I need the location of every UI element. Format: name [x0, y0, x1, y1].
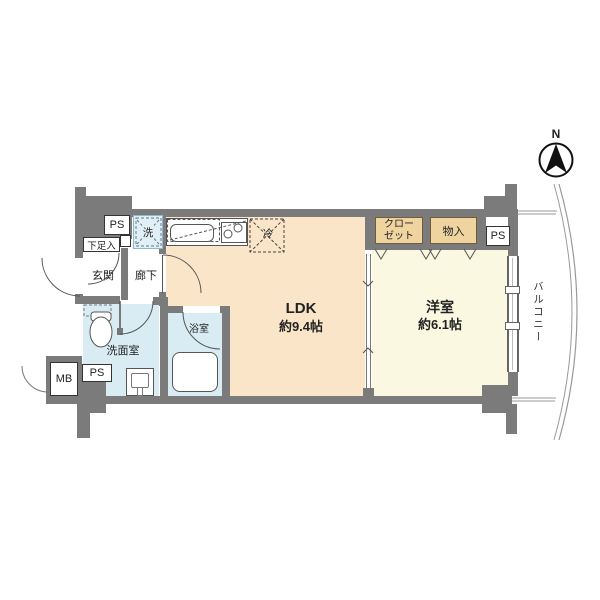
kitchen-stove: [221, 222, 247, 243]
balcony-outer-curve: [559, 184, 577, 440]
pipe-space-top-right-label: PS: [491, 230, 506, 242]
wall-left-upper: [75, 239, 83, 258]
western-room-size: 約6.1帖: [390, 317, 490, 333]
bathroom-label: 浴室: [183, 324, 215, 337]
storage-cabinet-label: 物入: [443, 223, 465, 239]
western-room-name: 洋室: [390, 299, 490, 317]
washing-machine-label: 洗: [142, 225, 155, 240]
window-mullion-upper: [505, 286, 520, 294]
north-arrow-icon: [545, 144, 567, 173]
refrigerator-label-wrap: 冷: [252, 228, 284, 241]
pipe-space-top-left-label: PS: [110, 219, 125, 231]
hallway-label: 廊下: [128, 270, 164, 284]
western-room-label: 洋室 約6.1帖: [390, 299, 490, 333]
sliding-door-line-right: [370, 254, 371, 392]
wall-bottom-left-stub: [77, 404, 90, 438]
wall-washroom-bathroom-divider: [160, 305, 168, 396]
wall-slider-stub-bottom: [363, 388, 374, 396]
wall-bathroom-right: [222, 306, 230, 396]
refrigerator-label: 冷: [262, 228, 275, 240]
closet-label: クローゼット: [382, 219, 416, 242]
wall-bottom-right-stub: [506, 404, 517, 434]
balcony-inner-curve: [554, 184, 572, 440]
north-arrow-circle: [540, 144, 573, 177]
ldk-name: LDK: [246, 300, 356, 319]
washing-machine-pad: 洗: [133, 215, 163, 249]
wall-hallway-bottom-right: [153, 297, 168, 305]
storage-cabinet: 物入: [430, 217, 477, 244]
wall-step-top-right-block: [484, 196, 508, 217]
closet: クローゼット: [375, 217, 423, 244]
wall-bathroom-top-left: [168, 306, 183, 313]
ldk-size: 約9.4帖: [246, 319, 356, 335]
wall-bottom: [46, 396, 512, 404]
compass-north-label: N: [548, 127, 564, 142]
entrance-label: 玄関: [85, 270, 121, 284]
wall-closet-mid: [423, 217, 430, 244]
window-mullion-lower: [505, 322, 520, 330]
washroom-label: 洗面室: [98, 345, 148, 359]
entrance-door-arc: [42, 258, 80, 296]
pipe-space-top-right: PS: [486, 226, 510, 246]
balcony-window-center-line: [512, 258, 513, 370]
meter-box-door-arc: [22, 366, 48, 392]
vanity-basin: [131, 373, 149, 388]
shoe-cabinet-label: 下足入: [87, 238, 116, 252]
wall-entrance-bottom: [75, 296, 120, 304]
meter-box: MB: [50, 362, 78, 396]
floor-plan: クローゼット 物入 洗 冷 PS 下足入 PS MB PS LDK 約9.4帖 …: [0, 0, 600, 600]
entrance-column: [120, 235, 131, 247]
ldk-label: LDK 約9.4帖: [246, 300, 356, 335]
balcony-rail-bottom: [512, 398, 556, 401]
wall-entrance-hallway-divider: [121, 248, 128, 300]
vanity-handle: [137, 387, 143, 396]
pipe-space-bottom-left-label: PS: [90, 367, 105, 379]
sliding-door-line-left: [366, 254, 367, 392]
shoe-cabinet: 下足入: [83, 237, 120, 252]
balcony-window: [507, 256, 519, 372]
bathtub: [172, 352, 218, 392]
balcony-label: バルコニー: [531, 281, 546, 344]
pipe-space-top-left: PS: [104, 215, 130, 235]
meter-box-label: MB: [56, 373, 73, 385]
kitchen-sink: [170, 224, 214, 242]
pipe-space-bottom-left: PS: [82, 364, 112, 382]
balcony-rail-top: [518, 211, 557, 214]
